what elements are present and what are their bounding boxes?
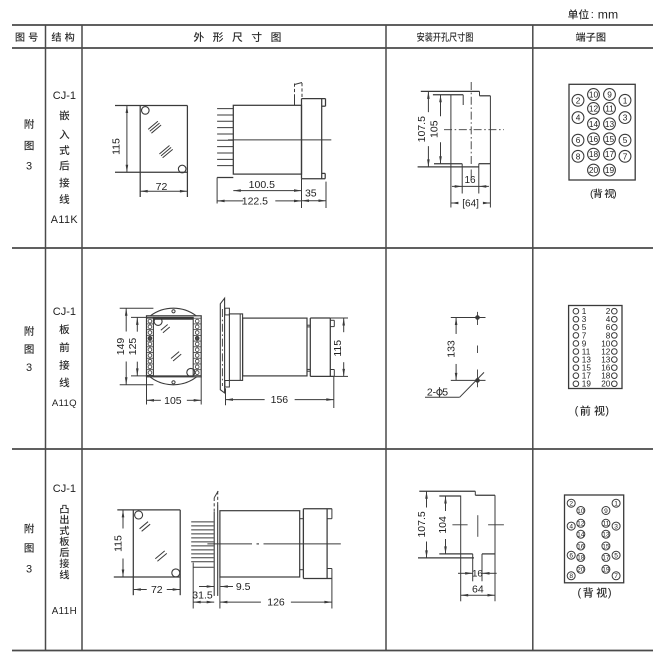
- svg-text:9: 9: [607, 90, 612, 100]
- svg-text:CJ-1: CJ-1: [53, 90, 76, 102]
- svg-text:13: 13: [605, 119, 615, 129]
- svg-text:17: 17: [602, 555, 610, 562]
- svg-text:3: 3: [614, 523, 618, 530]
- svg-text:): ): [605, 405, 609, 417]
- svg-text:16: 16: [577, 543, 585, 550]
- svg-text:64: 64: [472, 583, 484, 595]
- svg-text:100.5: 100.5: [249, 179, 275, 191]
- svg-text:3: 3: [623, 113, 628, 123]
- svg-text:5: 5: [442, 387, 448, 399]
- svg-text:2: 2: [569, 501, 573, 508]
- svg-text:16: 16: [472, 568, 483, 579]
- svg-text:18: 18: [577, 555, 585, 562]
- svg-text:(: (: [575, 405, 579, 417]
- svg-text:3: 3: [26, 564, 32, 576]
- svg-text:133: 133: [446, 340, 458, 358]
- svg-text:115: 115: [113, 535, 125, 552]
- svg-text:12: 12: [577, 521, 585, 528]
- svg-text::: :: [591, 9, 594, 21]
- svg-text:20: 20: [577, 567, 585, 574]
- svg-text:14: 14: [577, 532, 585, 539]
- svg-text:122.5: 122.5: [242, 195, 268, 207]
- svg-text:31.5: 31.5: [192, 589, 213, 601]
- svg-text:2-: 2-: [427, 387, 437, 399]
- svg-text:107.5: 107.5: [416, 116, 428, 142]
- svg-text:9: 9: [604, 508, 608, 515]
- svg-text:CJ-1: CJ-1: [53, 483, 76, 495]
- svg-text:8: 8: [576, 151, 581, 161]
- svg-text:20: 20: [601, 380, 611, 389]
- svg-text:(: (: [577, 587, 581, 599]
- svg-text:[64]: [64]: [462, 198, 479, 209]
- svg-text:6: 6: [576, 135, 581, 145]
- svg-text:1: 1: [623, 95, 628, 105]
- svg-text:105: 105: [164, 395, 182, 407]
- svg-text:A11H: A11H: [52, 606, 77, 617]
- svg-text:104: 104: [437, 516, 449, 534]
- svg-text:15: 15: [602, 543, 610, 550]
- svg-text:10: 10: [577, 508, 585, 515]
- svg-text:3: 3: [26, 161, 32, 173]
- svg-text:mm: mm: [598, 8, 618, 22]
- svg-text:72: 72: [156, 181, 168, 193]
- svg-text:5: 5: [614, 553, 618, 560]
- svg-text:12: 12: [589, 104, 599, 114]
- svg-text:4: 4: [576, 113, 581, 123]
- svg-text:4: 4: [569, 523, 573, 530]
- svg-text:1: 1: [614, 501, 618, 508]
- svg-text:16: 16: [464, 175, 476, 186]
- svg-text:A11K: A11K: [51, 214, 79, 226]
- svg-text:(: (: [590, 188, 594, 200]
- svg-text:115: 115: [332, 340, 344, 357]
- svg-text:19: 19: [582, 380, 592, 389]
- svg-text:8: 8: [569, 573, 573, 580]
- svg-text:7: 7: [623, 151, 628, 161]
- svg-text:126: 126: [267, 597, 285, 609]
- svg-text:CJ-1: CJ-1: [53, 306, 76, 318]
- svg-text:3: 3: [26, 362, 32, 374]
- svg-text:156: 156: [271, 394, 289, 406]
- svg-text:9.5: 9.5: [236, 581, 251, 593]
- svg-text:72: 72: [151, 584, 163, 596]
- svg-text:35: 35: [305, 188, 317, 200]
- svg-text:19: 19: [605, 165, 615, 175]
- svg-text:125: 125: [127, 338, 139, 356]
- svg-text:11: 11: [602, 521, 609, 528]
- svg-text:5: 5: [623, 135, 628, 145]
- svg-text:): ): [613, 188, 617, 200]
- svg-text:18: 18: [589, 149, 599, 159]
- svg-text:20: 20: [589, 165, 599, 175]
- svg-text:14: 14: [589, 119, 599, 129]
- svg-text:17: 17: [605, 149, 615, 159]
- svg-text:107.5: 107.5: [416, 511, 428, 537]
- svg-text:115: 115: [111, 138, 123, 155]
- svg-text:A11Q: A11Q: [52, 398, 77, 409]
- svg-text:11: 11: [605, 104, 614, 114]
- svg-text:16: 16: [589, 134, 599, 144]
- svg-text:105: 105: [428, 120, 440, 138]
- svg-text:149: 149: [115, 338, 127, 356]
- svg-text:19: 19: [602, 567, 610, 574]
- svg-text:2: 2: [576, 95, 581, 105]
- svg-text:10: 10: [589, 90, 599, 100]
- svg-text:7: 7: [614, 573, 618, 580]
- svg-text:15: 15: [605, 134, 615, 144]
- svg-text:6: 6: [569, 553, 573, 560]
- svg-text:13: 13: [602, 532, 610, 539]
- svg-text:): ): [608, 587, 612, 599]
